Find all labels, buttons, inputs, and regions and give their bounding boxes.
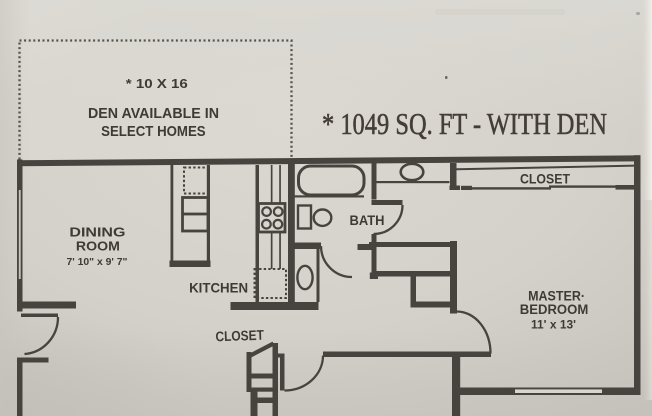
svg-text:SELECT HOMES: SELECT HOMES [101, 123, 206, 140]
svg-text:CLOSET: CLOSET [215, 327, 264, 345]
svg-text:* 10 X 16: * 10 X 16 [126, 76, 188, 91]
svg-text:KITCHEN: KITCHEN [189, 280, 248, 296]
svg-text:7' 10" x 9' 7": 7' 10" x 9' 7" [67, 256, 128, 268]
svg-text:* 1049 SQ. FT - WITH DEN: * 1049 SQ. FT - WITH DEN [322, 106, 607, 141]
svg-text:CLOSET: CLOSET [520, 171, 570, 187]
svg-text:BATH: BATH [350, 212, 385, 228]
svg-text:BEDROOM: BEDROOM [520, 302, 589, 317]
svg-text:DEN AVAILABLE IN: DEN AVAILABLE IN [88, 105, 219, 122]
svg-text:ROOM: ROOM [76, 239, 120, 254]
svg-text:11' x 13': 11' x 13' [531, 318, 576, 332]
svg-text:DINING: DINING [69, 225, 125, 240]
